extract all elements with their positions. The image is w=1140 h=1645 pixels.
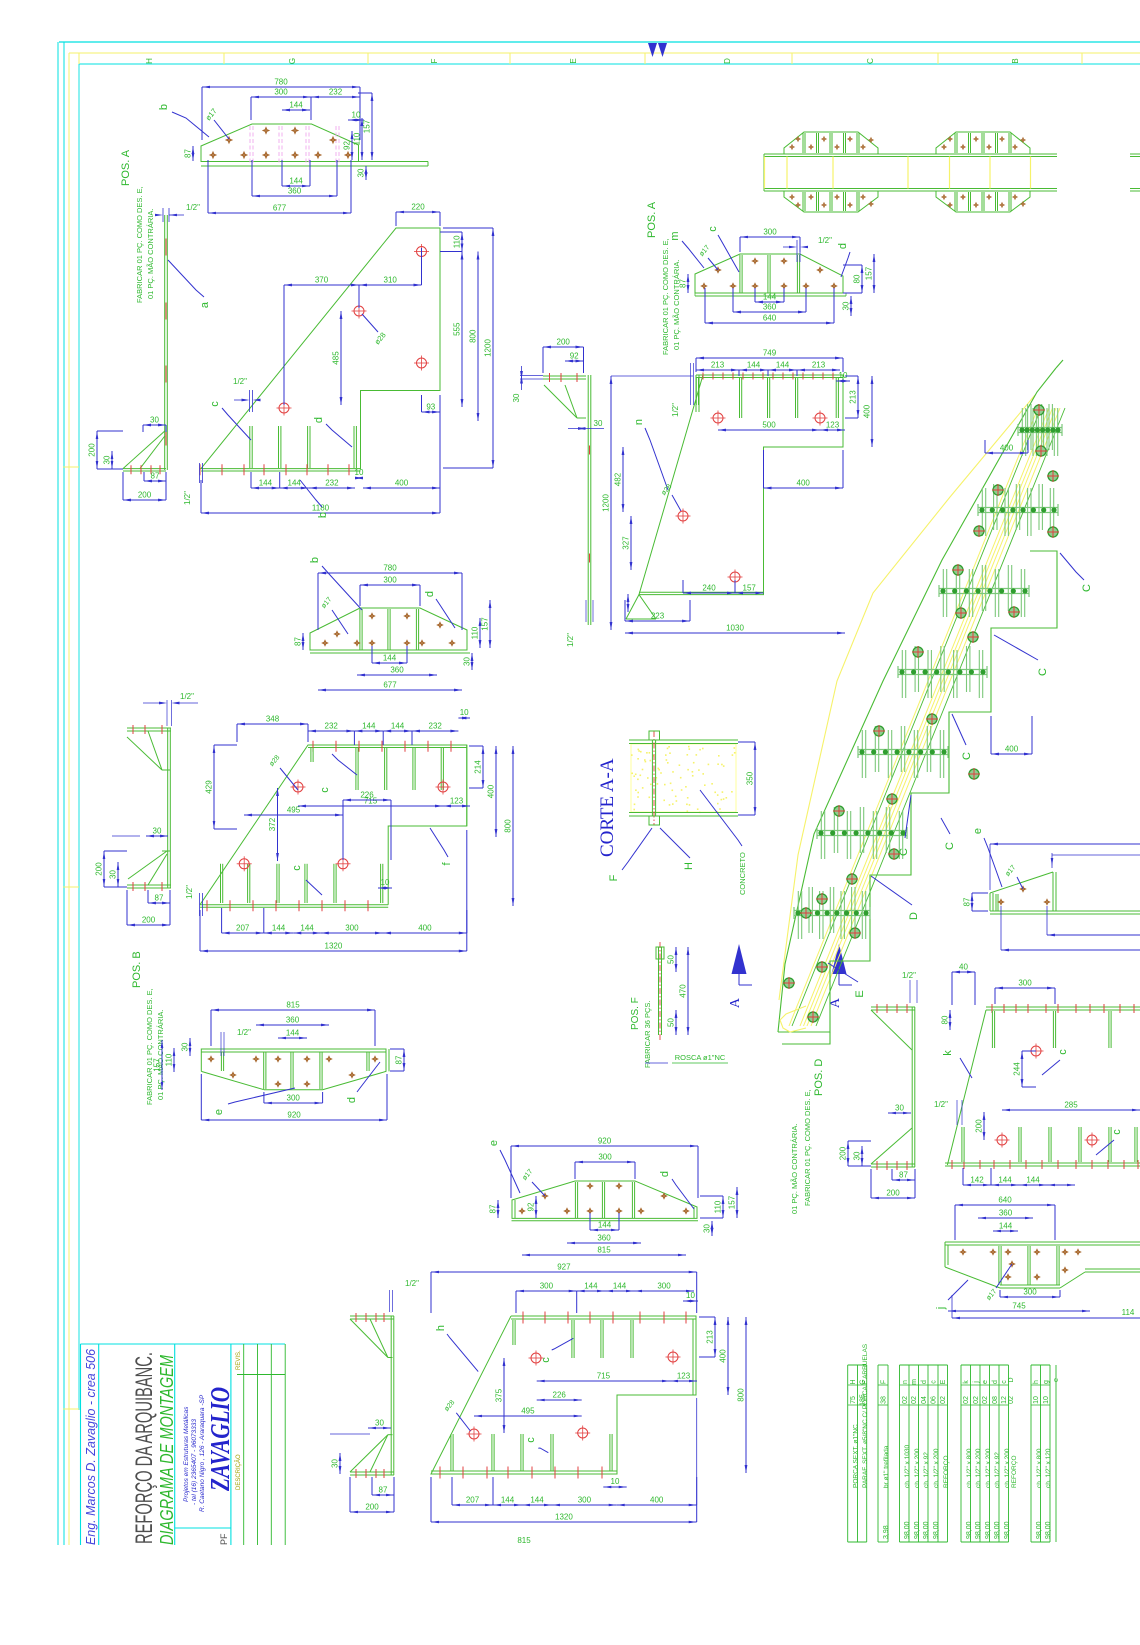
svg-text:495: 495 (521, 1407, 535, 1416)
svg-text:C: C (1037, 668, 1049, 676)
svg-text:08: 08 (992, 1396, 999, 1404)
svg-text:75: 75 (850, 1396, 857, 1404)
svg-text:98,00: 98,00 (923, 1521, 930, 1539)
svg-text:02: 02 (963, 1396, 970, 1404)
svg-text:m: m (911, 1379, 918, 1385)
svg-text:200: 200 (975, 1119, 984, 1133)
svg-text:244: 244 (1013, 1062, 1022, 1076)
svg-text:98,00: 98,00 (933, 1521, 940, 1539)
svg-text:144: 144 (501, 1496, 515, 1505)
svg-text:200: 200 (138, 491, 152, 500)
svg-text:285: 285 (1064, 1101, 1078, 1110)
svg-text:30: 30 (703, 1224, 712, 1233)
svg-text:232: 232 (325, 479, 339, 488)
svg-text:30: 30 (331, 1459, 340, 1468)
svg-text:3,98: 3,98 (883, 1525, 890, 1539)
svg-text:30: 30 (375, 1419, 384, 1428)
svg-text:REFORÇO: REFORÇO (943, 1456, 950, 1489)
svg-text:110: 110 (165, 1053, 174, 1066)
svg-text:C: C (898, 848, 910, 856)
svg-text:c: c (707, 226, 719, 232)
svg-text:226: 226 (360, 791, 374, 800)
svg-text:375: 375 (495, 1388, 504, 1402)
svg-text:01 PÇ. MÃO CONTRÁRIA.: 01 PÇ. MÃO CONTRÁRIA. (146, 209, 155, 299)
svg-text:482: 482 (614, 472, 623, 486)
svg-text:485: 485 (332, 351, 341, 365)
svg-text:300: 300 (383, 576, 397, 585)
svg-text:50: 50 (667, 955, 676, 964)
svg-text:10: 10 (686, 1291, 695, 1300)
svg-text:200: 200 (839, 1146, 848, 1160)
svg-text:360: 360 (390, 666, 404, 675)
svg-text:H: H (683, 862, 695, 870)
svg-text:429: 429 (205, 780, 214, 794)
svg-text:500: 500 (762, 421, 776, 430)
svg-text:1200: 1200 (602, 494, 611, 512)
svg-text:400: 400 (797, 479, 811, 488)
svg-text:c: c (1111, 1129, 1123, 1135)
svg-text:G: G (288, 58, 297, 64)
svg-text:c: c (525, 1437, 537, 1443)
svg-text:02: 02 (1008, 1396, 1015, 1404)
svg-text:745: 745 (1012, 1302, 1026, 1311)
svg-text:1/2": 1/2" (237, 1028, 251, 1037)
svg-text:144: 144 (598, 1221, 612, 1230)
svg-text:02: 02 (902, 1396, 909, 1404)
svg-text:R. Caetano Nigro , 126 - Arara: R. Caetano Nigro , 126 - Araraquara -SP (199, 1394, 206, 1512)
svg-text:38: 38 (881, 1396, 888, 1404)
svg-text:157: 157 (865, 266, 874, 280)
svg-text:h: h (435, 1325, 447, 1331)
svg-text:30: 30 (103, 455, 112, 464)
svg-text:144: 144 (289, 177, 303, 186)
svg-text:144: 144 (362, 722, 376, 731)
svg-text:DESCRIÇÃO: DESCRIÇÃO (235, 1454, 242, 1490)
svg-text:Projetos em Estruturas Metálic: Projetos em Estruturas Metálicas (183, 1406, 190, 1502)
svg-text:D: D (908, 912, 920, 920)
svg-text:1030: 1030 (726, 624, 744, 633)
svg-text:300: 300 (578, 1496, 592, 1505)
svg-text:j: j (935, 1307, 947, 1310)
svg-text:144: 144 (286, 1029, 300, 1038)
svg-text:02: 02 (973, 1396, 980, 1404)
svg-text:CORTE A-A: CORTE A-A (597, 758, 618, 857)
svg-text:06: 06 (931, 1396, 938, 1404)
svg-text:c: c (931, 1380, 938, 1384)
svg-text:B: B (1011, 58, 1020, 63)
svg-text:d: d (837, 243, 849, 249)
svg-text:300: 300 (1018, 979, 1032, 988)
svg-text:200: 200 (95, 862, 104, 876)
svg-text:10: 10 (381, 878, 390, 887)
svg-text:POS. D: POS. D (813, 1059, 825, 1096)
svg-text:ch. 1/2" x 200: ch. 1/2" x 200 (1004, 1448, 1011, 1488)
svg-text:FABRICAR 01 PÇ. COMO DES. E,: FABRICAR 01 PÇ. COMO DES. E, (135, 186, 144, 303)
svg-text:310: 310 (384, 276, 398, 285)
svg-text:C: C (961, 752, 973, 760)
svg-text:30: 30 (109, 870, 118, 879)
svg-text:360: 360 (763, 303, 777, 312)
svg-text:e: e (1053, 1378, 1060, 1382)
svg-text:b: b (317, 512, 329, 518)
svg-text:CONCRETO: CONCRETO (738, 852, 747, 895)
svg-text:400: 400 (395, 479, 409, 488)
svg-text:360: 360 (286, 1016, 300, 1025)
svg-text:ch. 1/2" x 92: ch. 1/2" x 92 (923, 1452, 930, 1488)
svg-text:87: 87 (184, 149, 193, 158)
svg-text:123: 123 (677, 1372, 691, 1381)
svg-text:d: d (992, 1380, 999, 1384)
svg-text:02: 02 (982, 1396, 989, 1404)
svg-text:226: 226 (553, 1391, 567, 1400)
svg-text:m: m (669, 231, 681, 240)
svg-text:92: 92 (527, 1202, 536, 1211)
svg-text:e: e (982, 1380, 989, 1384)
svg-text:372: 372 (268, 817, 277, 831)
svg-text:677: 677 (383, 681, 397, 690)
svg-text:ch. 1/2" x 1030: ch. 1/2" x 1030 (904, 1444, 911, 1488)
svg-text:F: F (608, 874, 620, 881)
svg-text:200: 200 (142, 916, 156, 925)
svg-text:87: 87 (963, 897, 972, 906)
svg-text:b: b (158, 104, 170, 110)
svg-text:400: 400 (863, 404, 872, 418)
svg-text:213: 213 (812, 361, 826, 370)
svg-text:ch. 1/2" x 800: ch. 1/2" x 800 (966, 1448, 973, 1488)
svg-text:800: 800 (469, 329, 478, 343)
svg-text:400: 400 (719, 1349, 728, 1363)
svg-text:30: 30 (842, 301, 851, 310)
svg-text:92: 92 (343, 141, 352, 150)
svg-text:348: 348 (266, 715, 280, 724)
svg-text:157: 157 (363, 119, 372, 133)
svg-text:87: 87 (489, 1204, 498, 1213)
svg-text:87: 87 (151, 472, 160, 481)
svg-text:e: e (972, 828, 984, 834)
svg-text:REFORÇO: REFORÇO (1011, 1456, 1018, 1489)
svg-text:E: E (854, 990, 866, 997)
svg-text:715: 715 (597, 1372, 611, 1381)
svg-text:555: 555 (453, 322, 462, 336)
svg-text:98,00: 98,00 (975, 1521, 982, 1539)
svg-text:n: n (902, 1380, 909, 1384)
svg-text:30: 30 (357, 168, 366, 177)
svg-text:10: 10 (1033, 1396, 1040, 1404)
svg-text:ch. 1/2" x 200: ch. 1/2" x 200 (914, 1448, 921, 1488)
svg-text:214: 214 (474, 760, 483, 774)
svg-text:1/2": 1/2" (233, 377, 247, 386)
svg-text:br ø1" trefilada: br ø1" trefilada (883, 1445, 890, 1488)
svg-text:C: C (866, 58, 875, 64)
svg-text:157: 157 (743, 584, 757, 593)
svg-text:e: e (488, 1140, 500, 1146)
svg-text:87: 87 (379, 1486, 388, 1495)
svg-text:98,00: 98,00 (1036, 1521, 1043, 1539)
svg-text:360: 360 (288, 187, 302, 196)
svg-text:142: 142 (970, 1176, 984, 1185)
svg-text:30: 30 (153, 827, 162, 836)
svg-text:E: E (940, 1379, 947, 1384)
svg-text:123: 123 (450, 797, 464, 806)
svg-text:927: 927 (557, 1263, 571, 1272)
svg-text:e: e (213, 1109, 225, 1115)
svg-text:02: 02 (940, 1396, 947, 1404)
svg-text:207: 207 (466, 1496, 480, 1505)
svg-text:240: 240 (702, 584, 716, 593)
svg-text:87: 87 (899, 1171, 908, 1180)
svg-text:d: d (921, 1380, 928, 1384)
svg-text:c: c (319, 787, 331, 793)
svg-text:370: 370 (315, 276, 329, 285)
svg-text:30: 30 (853, 1151, 862, 1160)
svg-text:144: 144 (584, 1282, 598, 1291)
svg-text:REVIS.: REVIS. (236, 1350, 242, 1370)
svg-text:C: C (944, 842, 956, 850)
svg-text:H: H (850, 1379, 857, 1384)
svg-text:H: H (145, 58, 154, 64)
svg-text:98,00: 98,00 (985, 1521, 992, 1539)
svg-text:144: 144 (776, 361, 790, 370)
svg-text:1/2": 1/2" (186, 203, 200, 212)
svg-text:749: 749 (763, 349, 777, 358)
svg-text:400: 400 (487, 784, 496, 798)
svg-text:98,00: 98,00 (966, 1521, 973, 1539)
svg-text:- tel (16) 2365407 - 96073333: - tel (16) 2365407 - 96073333 (191, 1419, 198, 1505)
svg-text:50: 50 (667, 1018, 676, 1027)
svg-text:1/2": 1/2" (566, 633, 575, 647)
svg-text:640: 640 (998, 1196, 1012, 1205)
svg-text:144: 144 (999, 1222, 1013, 1231)
svg-text:ch. 1/2" x 120: ch. 1/2" x 120 (1045, 1448, 1052, 1488)
svg-text:640: 640 (763, 314, 777, 323)
svg-text:470: 470 (679, 984, 688, 998)
svg-text:k: k (963, 1380, 970, 1384)
svg-text:FABRICAR 01 PÇ. COMO DES. E,: FABRICAR 01 PÇ. COMO DES. E, (145, 988, 154, 1105)
svg-text:400: 400 (650, 1496, 664, 1505)
svg-text:495: 495 (287, 806, 301, 815)
svg-text:ch. 1/2" x 200: ch. 1/2" x 200 (985, 1448, 992, 1488)
svg-text:300: 300 (540, 1282, 554, 1291)
svg-text:87: 87 (395, 1055, 404, 1064)
svg-text:C: C (1081, 584, 1093, 592)
svg-text:223: 223 (651, 612, 665, 621)
svg-text:327: 327 (622, 536, 631, 550)
svg-text:d: d (346, 1097, 358, 1103)
svg-text:10: 10 (1043, 1396, 1050, 1404)
svg-text:98,00: 98,00 (1004, 1521, 1011, 1539)
svg-text:F: F (430, 58, 439, 63)
svg-text:300: 300 (287, 1094, 301, 1103)
svg-text:DIAGRAMA DE MONTAGEM: DIAGRAMA DE MONTAGEM (157, 1355, 177, 1545)
svg-text:80: 80 (941, 1015, 950, 1024)
svg-text:10: 10 (460, 708, 469, 717)
svg-text:ch. 1/2" x 200: ch. 1/2" x 200 (975, 1448, 982, 1488)
svg-text:800: 800 (504, 819, 513, 833)
svg-text:144: 144 (747, 361, 761, 370)
svg-text:1320: 1320 (555, 1513, 573, 1522)
svg-text:920: 920 (287, 1111, 301, 1120)
svg-text:144: 144 (300, 924, 314, 933)
svg-text:REFORÇO DA ARQUIBANC.: REFORÇO DA ARQUIBANC. (131, 1352, 158, 1544)
svg-text:93: 93 (426, 403, 435, 412)
svg-text:ch. 1/2" x 800: ch. 1/2" x 800 (1036, 1448, 1043, 1488)
svg-text:b: b (309, 557, 321, 563)
svg-text:920: 920 (598, 1137, 612, 1146)
svg-text:E: E (569, 58, 578, 63)
svg-text:PF: PF (219, 1533, 229, 1545)
svg-text:PARAF. SEXT. ø5/8"NC C/ PORCA: PARAF. SEXT. ø5/8"NC C/ PORCA E ARRUELAS (862, 1343, 869, 1488)
svg-text:10: 10 (611, 1477, 620, 1486)
svg-text:ZAVAGLIO: ZAVAGLIO (205, 1387, 235, 1492)
svg-text:98,00: 98,00 (914, 1521, 921, 1539)
svg-text:110: 110 (471, 626, 480, 639)
svg-text:400: 400 (418, 924, 432, 933)
svg-text:110: 110 (714, 1200, 723, 1213)
svg-text:FABRICAR 01 PÇ. COMO DES. E,: FABRICAR 01 PÇ. COMO DES. E, (661, 238, 670, 355)
svg-text:144: 144 (998, 1176, 1012, 1185)
svg-text:A: A (728, 997, 743, 1008)
svg-text:200: 200 (88, 443, 97, 457)
svg-text:98,00: 98,00 (904, 1521, 911, 1539)
svg-text:815: 815 (286, 1001, 300, 1010)
svg-text:300: 300 (598, 1153, 612, 1162)
svg-text:400: 400 (1000, 444, 1014, 453)
svg-text:g: g (1043, 1380, 1050, 1384)
svg-text:Eng. Marcos D. Zavaglio - crea: Eng. Marcos D. Zavaglio - crea 506 (83, 1348, 98, 1545)
svg-text:110: 110 (353, 132, 362, 145)
svg-text:c: c (291, 865, 303, 871)
svg-text:30: 30 (150, 416, 159, 425)
svg-text:300: 300 (1023, 1288, 1037, 1297)
svg-text:c: c (540, 1357, 552, 1363)
svg-text:200: 200 (557, 338, 571, 347)
svg-text:300: 300 (345, 924, 359, 933)
svg-text:1/2": 1/2" (934, 1100, 948, 1109)
svg-text:80: 80 (853, 274, 862, 283)
svg-text:157: 157 (481, 617, 490, 631)
svg-text:02: 02 (911, 1396, 918, 1404)
svg-text:157: 157 (728, 1195, 737, 1209)
svg-text:677: 677 (273, 204, 287, 213)
svg-text:c: c (209, 401, 221, 407)
svg-text:144: 144 (763, 293, 777, 302)
svg-text:POS. B: POS. B (131, 951, 143, 988)
svg-text:10: 10 (355, 468, 364, 477)
svg-text:1/2": 1/2" (405, 1279, 419, 1288)
svg-text:815: 815 (597, 1246, 611, 1255)
svg-text:04: 04 (921, 1396, 928, 1404)
svg-text:01 PÇ. MÃO CONTRÁRIA.: 01 PÇ. MÃO CONTRÁRIA. (790, 1124, 799, 1214)
svg-text:144: 144 (289, 101, 303, 110)
svg-text:c: c (1057, 1049, 1069, 1055)
svg-text:213: 213 (849, 390, 858, 404)
svg-text:213: 213 (706, 1330, 715, 1344)
svg-text:87: 87 (155, 894, 164, 903)
svg-text:144: 144 (288, 479, 302, 488)
svg-text:232: 232 (325, 722, 339, 731)
svg-text:D: D (1008, 1377, 1015, 1382)
svg-text:213: 213 (711, 361, 725, 370)
svg-text:1/2": 1/2" (180, 692, 194, 701)
svg-text:144: 144 (530, 1496, 544, 1505)
svg-text:87: 87 (294, 637, 303, 646)
svg-text:ch. 1/2" x 200: ch. 1/2" x 200 (933, 1448, 940, 1488)
svg-text:815: 815 (517, 1536, 531, 1545)
svg-text:123: 123 (826, 421, 840, 430)
svg-text:300: 300 (274, 88, 288, 97)
svg-text:POS. A: POS. A (646, 201, 658, 238)
svg-text:780: 780 (274, 78, 288, 87)
svg-text:01 PÇ. MÃO CONTRÁRIA.: 01 PÇ. MÃO CONTRÁRIA. (672, 260, 681, 350)
svg-text:d: d (659, 1171, 671, 1177)
svg-text:30: 30 (895, 1104, 904, 1113)
svg-text:200: 200 (365, 1503, 379, 1512)
svg-text:144: 144 (259, 479, 273, 488)
svg-text:144: 144 (272, 924, 286, 933)
svg-text:d: d (424, 591, 436, 597)
svg-text:220: 220 (411, 203, 425, 212)
svg-text:30: 30 (512, 393, 521, 402)
svg-text:n: n (633, 419, 645, 425)
svg-text:157: 157 (153, 1058, 162, 1072)
svg-text:360: 360 (999, 1209, 1013, 1218)
svg-text:30: 30 (594, 419, 603, 428)
svg-text:114: 114 (1122, 1308, 1135, 1317)
svg-text:98,00: 98,00 (994, 1521, 1001, 1539)
svg-text:30: 30 (181, 1042, 190, 1051)
svg-text:PORCA SEXT. ø1"NC: PORCA SEXT. ø1"NC (853, 1424, 860, 1488)
svg-text:10: 10 (352, 111, 361, 120)
svg-text:144: 144 (391, 722, 405, 731)
svg-text:ch. 1/2" x 92: ch. 1/2" x 92 (994, 1452, 1001, 1488)
svg-text:1/2": 1/2" (818, 236, 832, 245)
svg-text:1/2": 1/2" (671, 403, 680, 417)
svg-text:400: 400 (1005, 745, 1019, 754)
svg-text:1/2": 1/2" (902, 971, 916, 980)
svg-text:300: 300 (657, 1282, 671, 1291)
svg-text:350: 350 (746, 771, 755, 785)
svg-text:FABRICAR 36 PÇS.: FABRICAR 36 PÇS. (643, 1000, 652, 1068)
svg-text:1/2": 1/2" (183, 491, 192, 505)
svg-text:232: 232 (429, 722, 443, 731)
svg-text:a: a (199, 301, 211, 308)
svg-text:144: 144 (1026, 1176, 1040, 1185)
svg-text:POS. A: POS. A (120, 149, 132, 186)
svg-text:40: 40 (959, 963, 968, 972)
svg-text:30: 30 (463, 657, 472, 666)
svg-text:780: 780 (383, 564, 397, 573)
svg-text:1/2": 1/2" (185, 885, 194, 899)
svg-text:POS. F: POS. F (630, 997, 641, 1030)
svg-text:800: 800 (737, 1388, 746, 1402)
svg-text:FABRICAR 01 PÇ. COMO DES. E,: FABRICAR 01 PÇ. COMO DES. E, (803, 1089, 812, 1206)
svg-text:207: 207 (236, 924, 250, 933)
svg-text:200: 200 (886, 1189, 900, 1198)
svg-text:87: 87 (679, 279, 688, 288)
svg-text:110: 110 (453, 235, 462, 248)
svg-text:360: 360 (597, 1234, 611, 1243)
svg-text:ROSCA ø1"NC: ROSCA ø1"NC (675, 1053, 726, 1062)
svg-text:1200: 1200 (484, 339, 493, 357)
svg-text:92: 92 (570, 352, 579, 361)
svg-text:F: F (881, 1380, 888, 1384)
svg-text:232: 232 (329, 88, 343, 97)
svg-text:d: d (313, 417, 325, 423)
svg-text:144: 144 (383, 654, 397, 663)
svg-text:98,00: 98,00 (1045, 1521, 1052, 1539)
svg-text:144: 144 (613, 1282, 627, 1291)
svg-text:k: k (942, 1050, 954, 1056)
